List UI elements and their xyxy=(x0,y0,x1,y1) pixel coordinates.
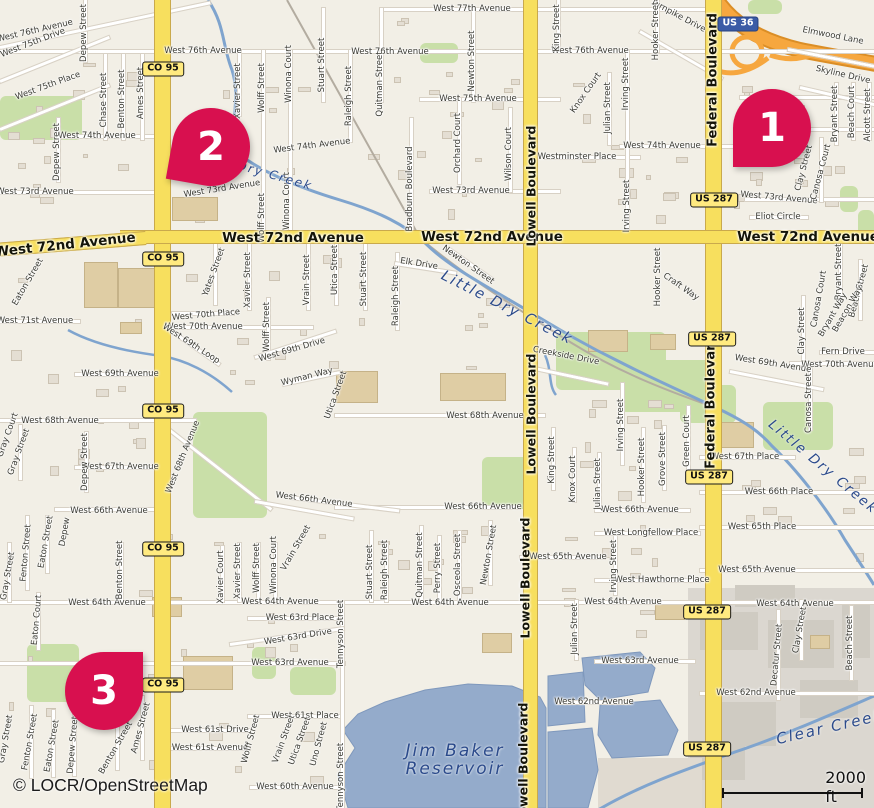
route-badge-us287: US 287 xyxy=(685,470,733,485)
creek-branch-line xyxy=(545,355,556,395)
street-name-label: West 64th Avenue xyxy=(584,597,661,607)
street-name-label: Wolff Street xyxy=(257,63,267,113)
street-name-label: Bradburn Boulevard xyxy=(405,146,415,231)
street-name-label: West 61st Avenue xyxy=(172,743,248,753)
street-name-label: West 76th Avenue xyxy=(351,47,428,57)
street-name-label: Tennyson Street xyxy=(336,743,346,808)
street-name-label: West 64th Avenue xyxy=(68,598,145,608)
street-name-label: West 68th Avenue xyxy=(21,416,98,426)
route-badge-us287: US 287 xyxy=(683,742,731,757)
street-name-label: Wolff Street xyxy=(262,302,272,352)
street-name-label: Julian Street xyxy=(570,603,580,655)
map-marker-1[interactable]: 1 xyxy=(733,89,811,167)
street-name-label: Julian Street xyxy=(603,82,613,134)
major-road-name-label: Lowell Boulevard xyxy=(516,703,531,808)
route-badge-co95: CO 95 xyxy=(142,62,184,77)
street-name-label: Xavier Street xyxy=(233,543,243,599)
route-badge-us36: US 36 xyxy=(717,17,758,32)
street-name-label: Xavier Street xyxy=(243,252,253,308)
street-name-label: Benton Street xyxy=(115,541,125,600)
street-name-label: Knox Court xyxy=(568,456,578,503)
route-badge-co95: CO 95 xyxy=(142,678,184,693)
street-name-label: West 64th Avenue xyxy=(756,599,833,609)
map-marker-3[interactable]: 3 xyxy=(65,652,143,730)
route-badge-us287: US 287 xyxy=(688,332,736,347)
street-name-label: Raleigh Street xyxy=(391,266,401,326)
marker-number: 2 xyxy=(172,108,250,186)
map-attribution: © LOCR/OpenStreetMap xyxy=(13,775,208,796)
street-name-label: Grove Street xyxy=(658,432,668,486)
street-name-label: Newton Street xyxy=(467,31,477,92)
major-road-name-label: West 72nd Avenue xyxy=(737,229,874,245)
street-name-label: West 65th Avenue xyxy=(718,565,795,575)
street-name-label: Alcott Street xyxy=(863,88,873,141)
street-name-label: West 66th Avenue xyxy=(601,505,678,515)
street-name-label: West 67th Avenue xyxy=(81,462,158,472)
street-name-label: Chase Street xyxy=(99,73,109,128)
route-badge-co95: CO 95 xyxy=(142,404,184,419)
street-name-label: Vrain Street xyxy=(302,255,312,306)
street-name-label: Westminster Place xyxy=(538,152,617,162)
street-name-label: West 62nd Avenue xyxy=(716,688,795,698)
street-name-label: West 74th Avenue xyxy=(623,141,700,151)
marker-number: 3 xyxy=(65,652,143,730)
scale-bar xyxy=(722,792,863,794)
street-name-label: West 77th Avenue xyxy=(433,4,510,14)
map-marker-2[interactable]: 2 xyxy=(166,102,256,192)
street-name-label: West 76th Avenue xyxy=(164,46,241,56)
street-name-label: West 71st Avenue xyxy=(0,316,73,326)
major-road-name-label: Lowell Boulevard xyxy=(524,354,539,475)
street-name-label: West 69th Avenue xyxy=(81,369,158,379)
street-name-label: West 66th Avenue xyxy=(70,506,147,516)
major-road-name-label: Lowell Boulevard xyxy=(524,126,539,247)
street-name-label: Depew Street xyxy=(80,433,90,491)
street-name-label: Beach Court xyxy=(847,86,857,138)
street-name-label: Fern Drive xyxy=(821,347,865,357)
street-name-label: Utica Street xyxy=(330,245,340,295)
street-name-label: Stuart Street xyxy=(365,545,375,600)
street-name-label: Bryant Street xyxy=(830,86,840,143)
street-name-label: Green Court xyxy=(682,415,692,467)
route-badge-us287: US 287 xyxy=(683,605,731,620)
route-badge-us287: US 287 xyxy=(690,193,738,208)
scale-label: 2000 ft xyxy=(825,768,866,806)
street-name-label: West 62nd Avenue xyxy=(554,697,633,707)
street-name-label: Tennyson Street xyxy=(336,600,346,668)
street-name-label: Raleigh Street xyxy=(344,66,354,126)
street-name-label: Wilson Court xyxy=(504,127,514,181)
street-name-label: Hooker Street xyxy=(637,438,647,497)
street-name-label: Stuart Street xyxy=(317,38,327,93)
street-name-label: Irving Street xyxy=(621,58,631,111)
street-name-label: Depew Street xyxy=(52,123,62,181)
street-name-label: West 65th Avenue xyxy=(529,552,606,562)
street-name-label: Hooker Street xyxy=(651,2,661,61)
street-name-label: King Street xyxy=(552,4,562,51)
street-name-label: West Hawthorne Place xyxy=(614,575,709,585)
street-name-label: Winona Court xyxy=(284,45,294,103)
route-badge-co95: CO 95 xyxy=(142,252,184,267)
major-road-name-label: Federal Boulevard xyxy=(706,13,721,147)
street-name-label: West 63rd Avenue xyxy=(251,658,328,668)
pond xyxy=(598,700,678,758)
pond xyxy=(548,728,598,808)
street-name-label: West 63rd Place xyxy=(266,613,334,623)
street-name-label: West 76th Avenue xyxy=(551,46,628,56)
street-name-label: West 67th Place xyxy=(711,452,779,462)
street-name-label: Quitman Street xyxy=(415,532,425,597)
street-name-label: Winona Court xyxy=(269,536,279,594)
street-name-label: West 65th Place xyxy=(728,522,796,532)
street-name-label: Perry Street xyxy=(433,543,443,593)
street-name-label: Eliot Circle xyxy=(755,212,800,222)
street-name-label: Benton Street xyxy=(117,70,127,129)
street-name-label: West 61st Drive xyxy=(181,725,249,735)
street-name-label: Depew Street xyxy=(79,4,89,62)
street-name-label: Julian Street xyxy=(593,458,603,510)
route-badge-co95: CO 95 xyxy=(142,542,184,557)
water-name-label: Jim Baker xyxy=(405,741,504,761)
street-name-label: Hooker Street xyxy=(653,248,663,307)
street-name-label: Irving Street xyxy=(609,540,619,593)
street-name-label: West 60th Avenue xyxy=(256,782,333,792)
street-name-label: West 66th Avenue xyxy=(444,502,521,512)
water-name-label: Reservoir xyxy=(406,759,505,779)
street-name-label: Osceola Street xyxy=(453,534,463,596)
street-name-label: West 73rd Avenue xyxy=(0,187,74,197)
major-road-name-label: West 72nd Avenue xyxy=(222,230,364,246)
major-road-name-label: West 72nd Avenue xyxy=(421,229,563,245)
street-name-label: Clay Street xyxy=(797,307,807,354)
street-name-label: Xavier Court xyxy=(216,550,226,603)
street xyxy=(0,50,874,53)
street-name-label: West 70th Avenue xyxy=(801,360,874,370)
street-name-label: Orchard Court xyxy=(453,113,463,173)
street-name-label: Raleigh Street xyxy=(380,540,390,600)
marker-number: 1 xyxy=(733,89,811,167)
major-road-name-label: Federal Boulevard xyxy=(704,335,719,469)
map-canvas[interactable]: West 77th AvenueWest 76th AvenueWest 76t… xyxy=(0,0,874,808)
street-name-label: West 64th Avenue xyxy=(411,598,488,608)
street-name-label: Beach Street xyxy=(845,616,855,671)
street-name-label: West 75th Avenue xyxy=(439,94,516,104)
street-name-label: West 68th Avenue xyxy=(446,411,523,421)
street-name-label: Quitman Street xyxy=(375,51,385,116)
major-road-name-label: Lowell Boulevard xyxy=(518,518,533,639)
street-name-label: King Street xyxy=(547,436,557,483)
street-name-label: West 64th Avenue xyxy=(241,597,318,607)
street-name-label: Wolff Street xyxy=(252,543,262,593)
street-name-label: West 73rd Avenue xyxy=(432,186,509,196)
street-name-label: Irving Street xyxy=(622,180,632,233)
street-name-label: West 66th Place xyxy=(745,487,813,497)
street-name-label: Canosa Street xyxy=(804,373,814,433)
us36-motorway xyxy=(712,0,874,64)
street-name-label: West 74th Avenue xyxy=(58,131,135,141)
street-name-label: Stuart Street xyxy=(359,252,369,307)
street-name-label: Irving Street xyxy=(616,399,626,452)
street-name-label: West 63rd Avenue xyxy=(601,656,678,666)
street-name-label: West Longfellow Place xyxy=(604,528,699,538)
